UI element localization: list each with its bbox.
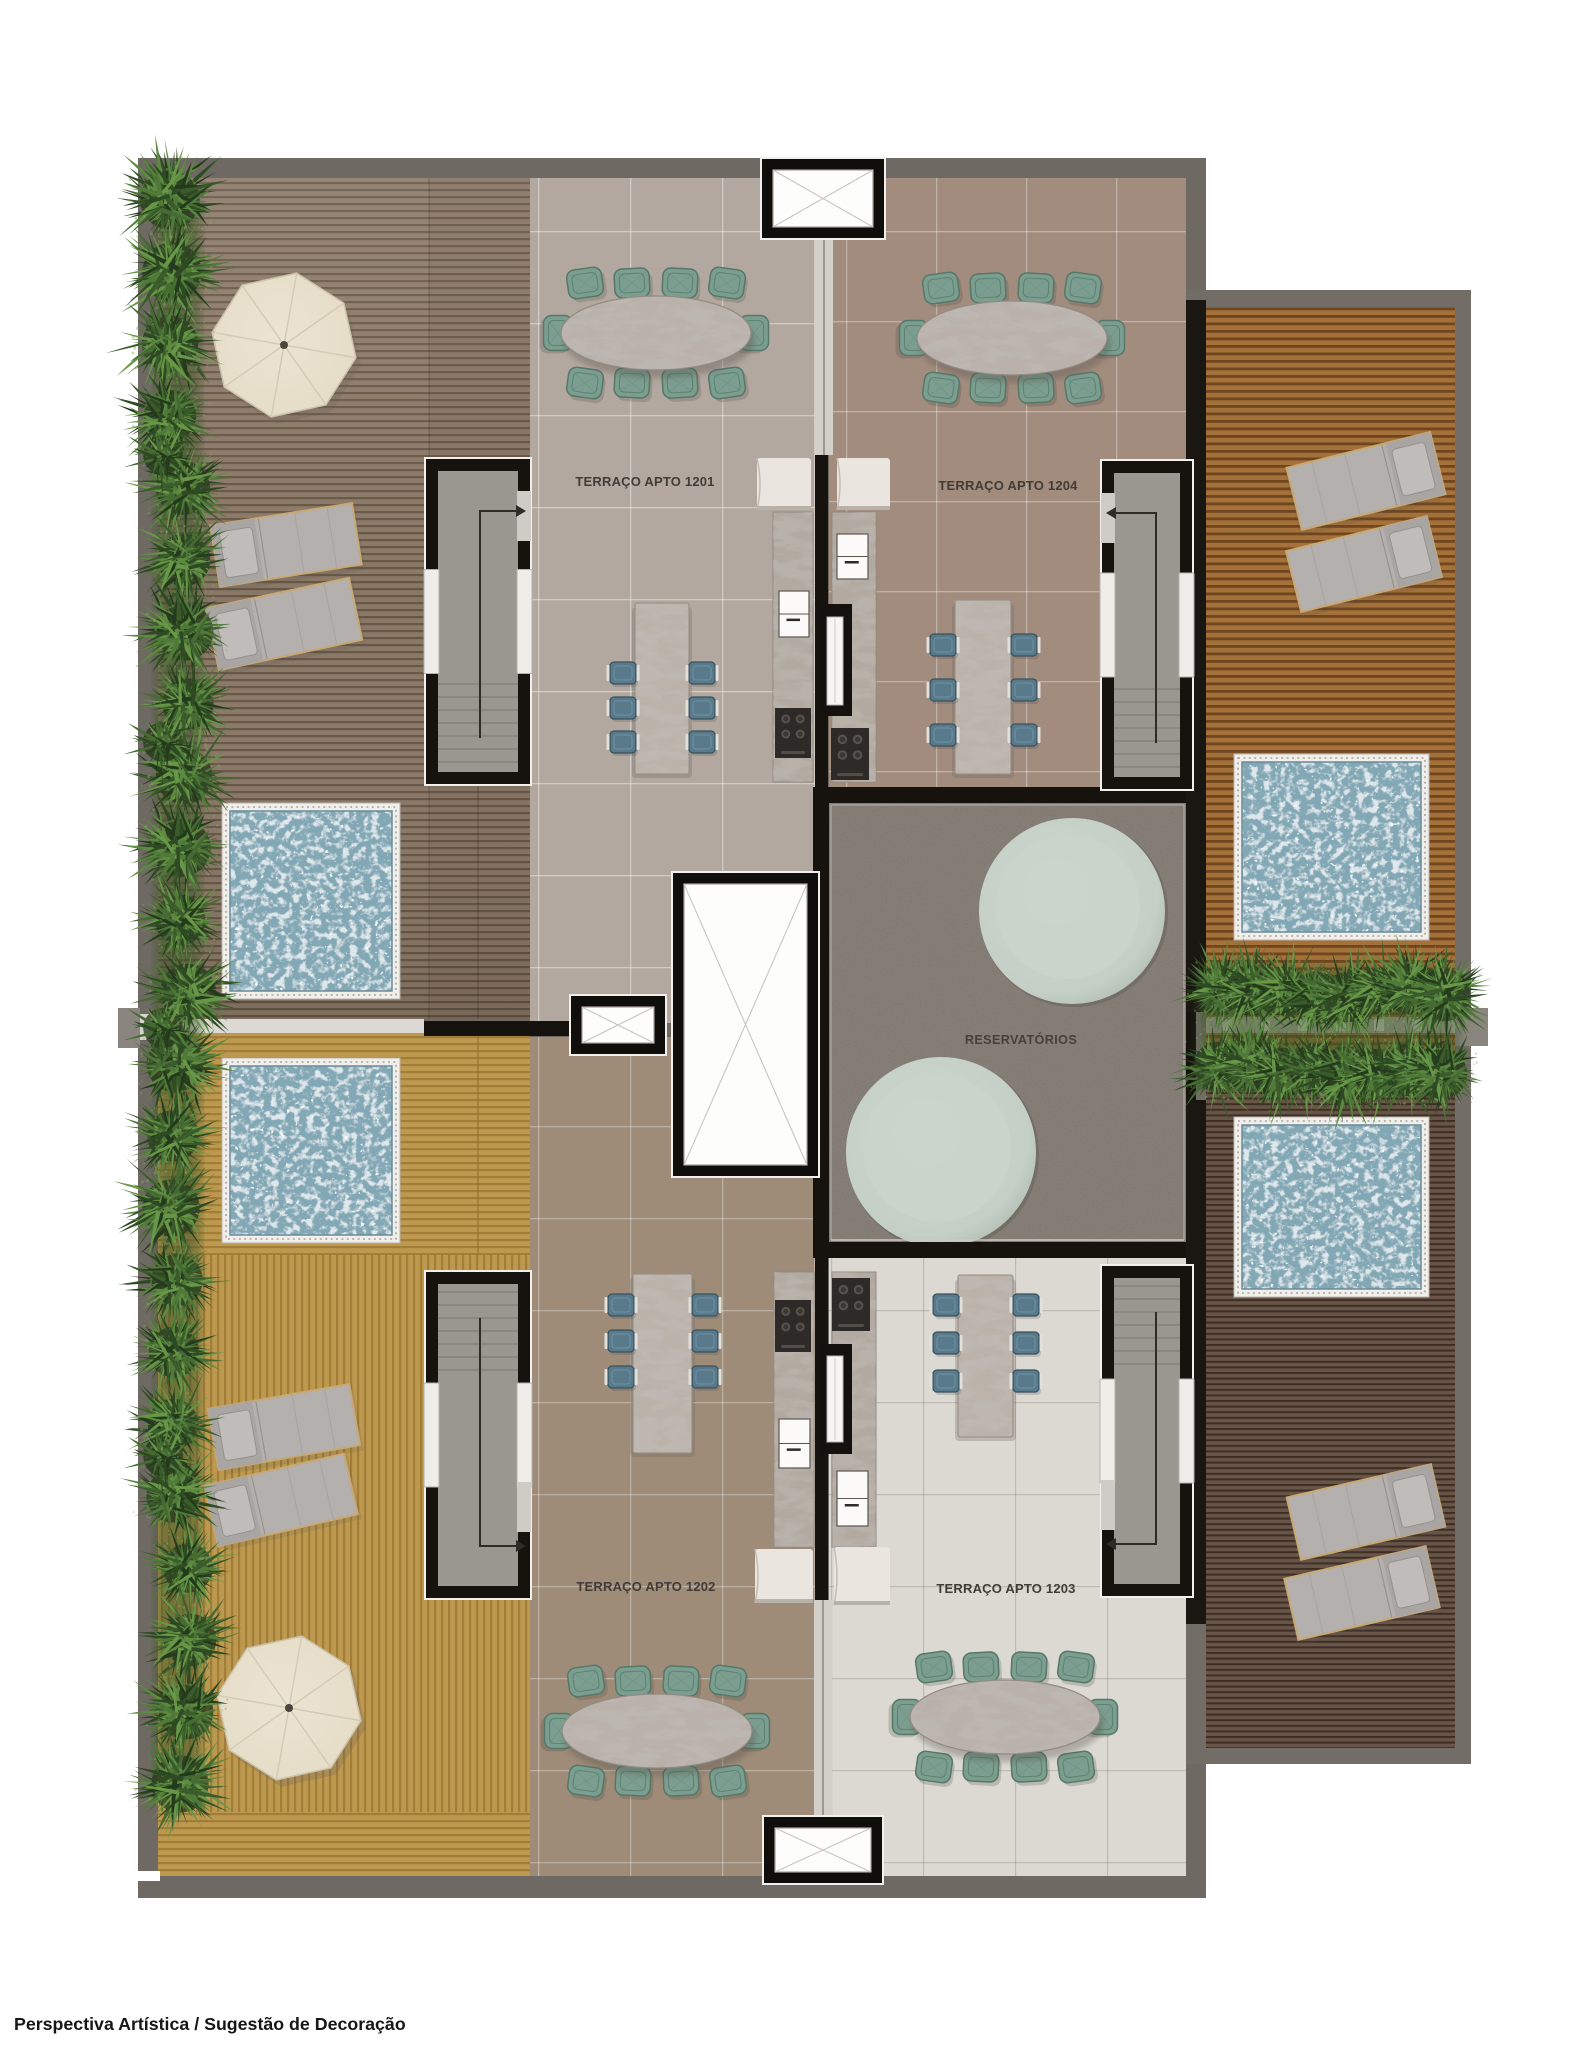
svg-text:TERRAÇO APTO 1204: TERRAÇO APTO 1204 (938, 478, 1078, 493)
svg-text:TERRAÇO APTO 1202: TERRAÇO APTO 1202 (576, 1579, 715, 1594)
svg-text:RESERVATÓRIOS: RESERVATÓRIOS (965, 1032, 1077, 1047)
svg-text:TERRAÇO APTO 1203: TERRAÇO APTO 1203 (936, 1581, 1075, 1596)
svg-text:TERRAÇO APTO 1201: TERRAÇO APTO 1201 (575, 474, 714, 489)
svg-text:Perspectiva Artística / Sugest: Perspectiva Artística / Sugestão de Deco… (14, 2014, 406, 2034)
